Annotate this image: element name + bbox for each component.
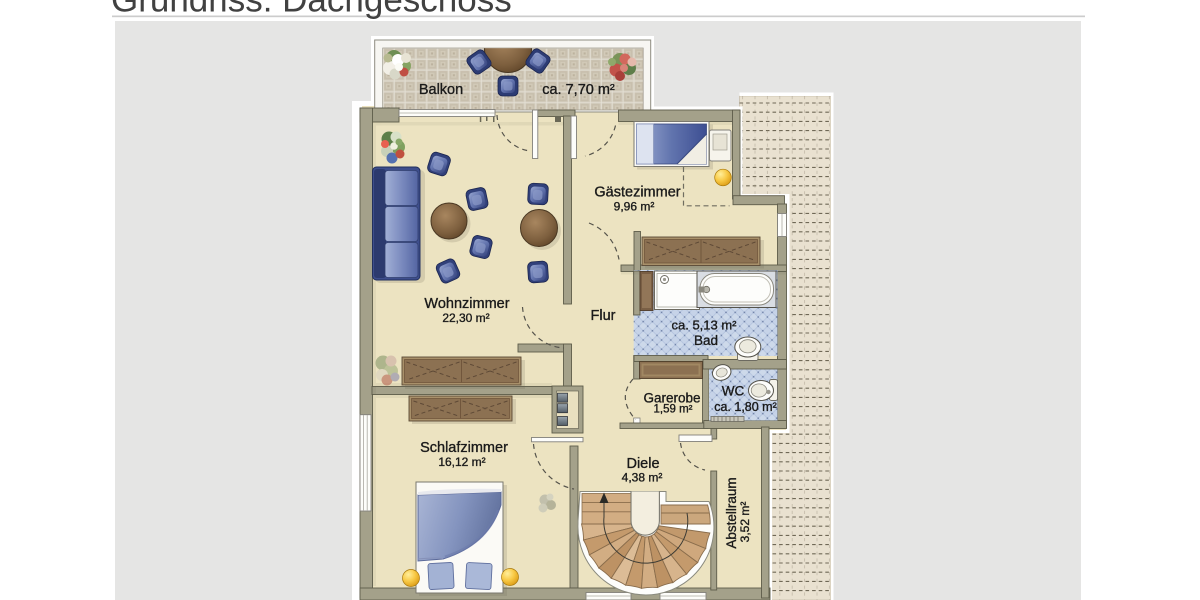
svg-text:ca. 1,80 m²: ca. 1,80 m²: [714, 400, 777, 414]
svg-text:Grundriss: Dachgeschoss: Grundriss: Dachgeschoss: [111, 0, 512, 20]
svg-text:Wohnzimmer: Wohnzimmer: [424, 296, 509, 312]
svg-text:Gästezimmer: Gästezimmer: [594, 185, 680, 201]
svg-text:9,96 m²: 9,96 m²: [614, 200, 655, 214]
svg-text:Flur: Flur: [591, 308, 616, 324]
svg-text:4,38 m²: 4,38 m²: [622, 471, 663, 485]
svg-text:ca. 7,70 m²: ca. 7,70 m²: [542, 82, 615, 98]
svg-text:1,59 m²: 1,59 m²: [654, 404, 693, 416]
svg-text:22,30 m²: 22,30 m²: [442, 311, 489, 325]
svg-text:Balkon: Balkon: [419, 82, 463, 98]
svg-text:16,12 m²: 16,12 m²: [438, 455, 485, 469]
svg-text:Schlafzimmer: Schlafzimmer: [420, 440, 508, 456]
svg-text:Bad: Bad: [694, 333, 718, 348]
svg-text:ca. 5,13 m²: ca. 5,13 m²: [671, 318, 737, 333]
svg-text:WC: WC: [722, 384, 745, 399]
svg-text:Abstellraum: Abstellraum: [724, 477, 739, 548]
svg-text:3,52 m²: 3,52 m²: [738, 502, 752, 543]
